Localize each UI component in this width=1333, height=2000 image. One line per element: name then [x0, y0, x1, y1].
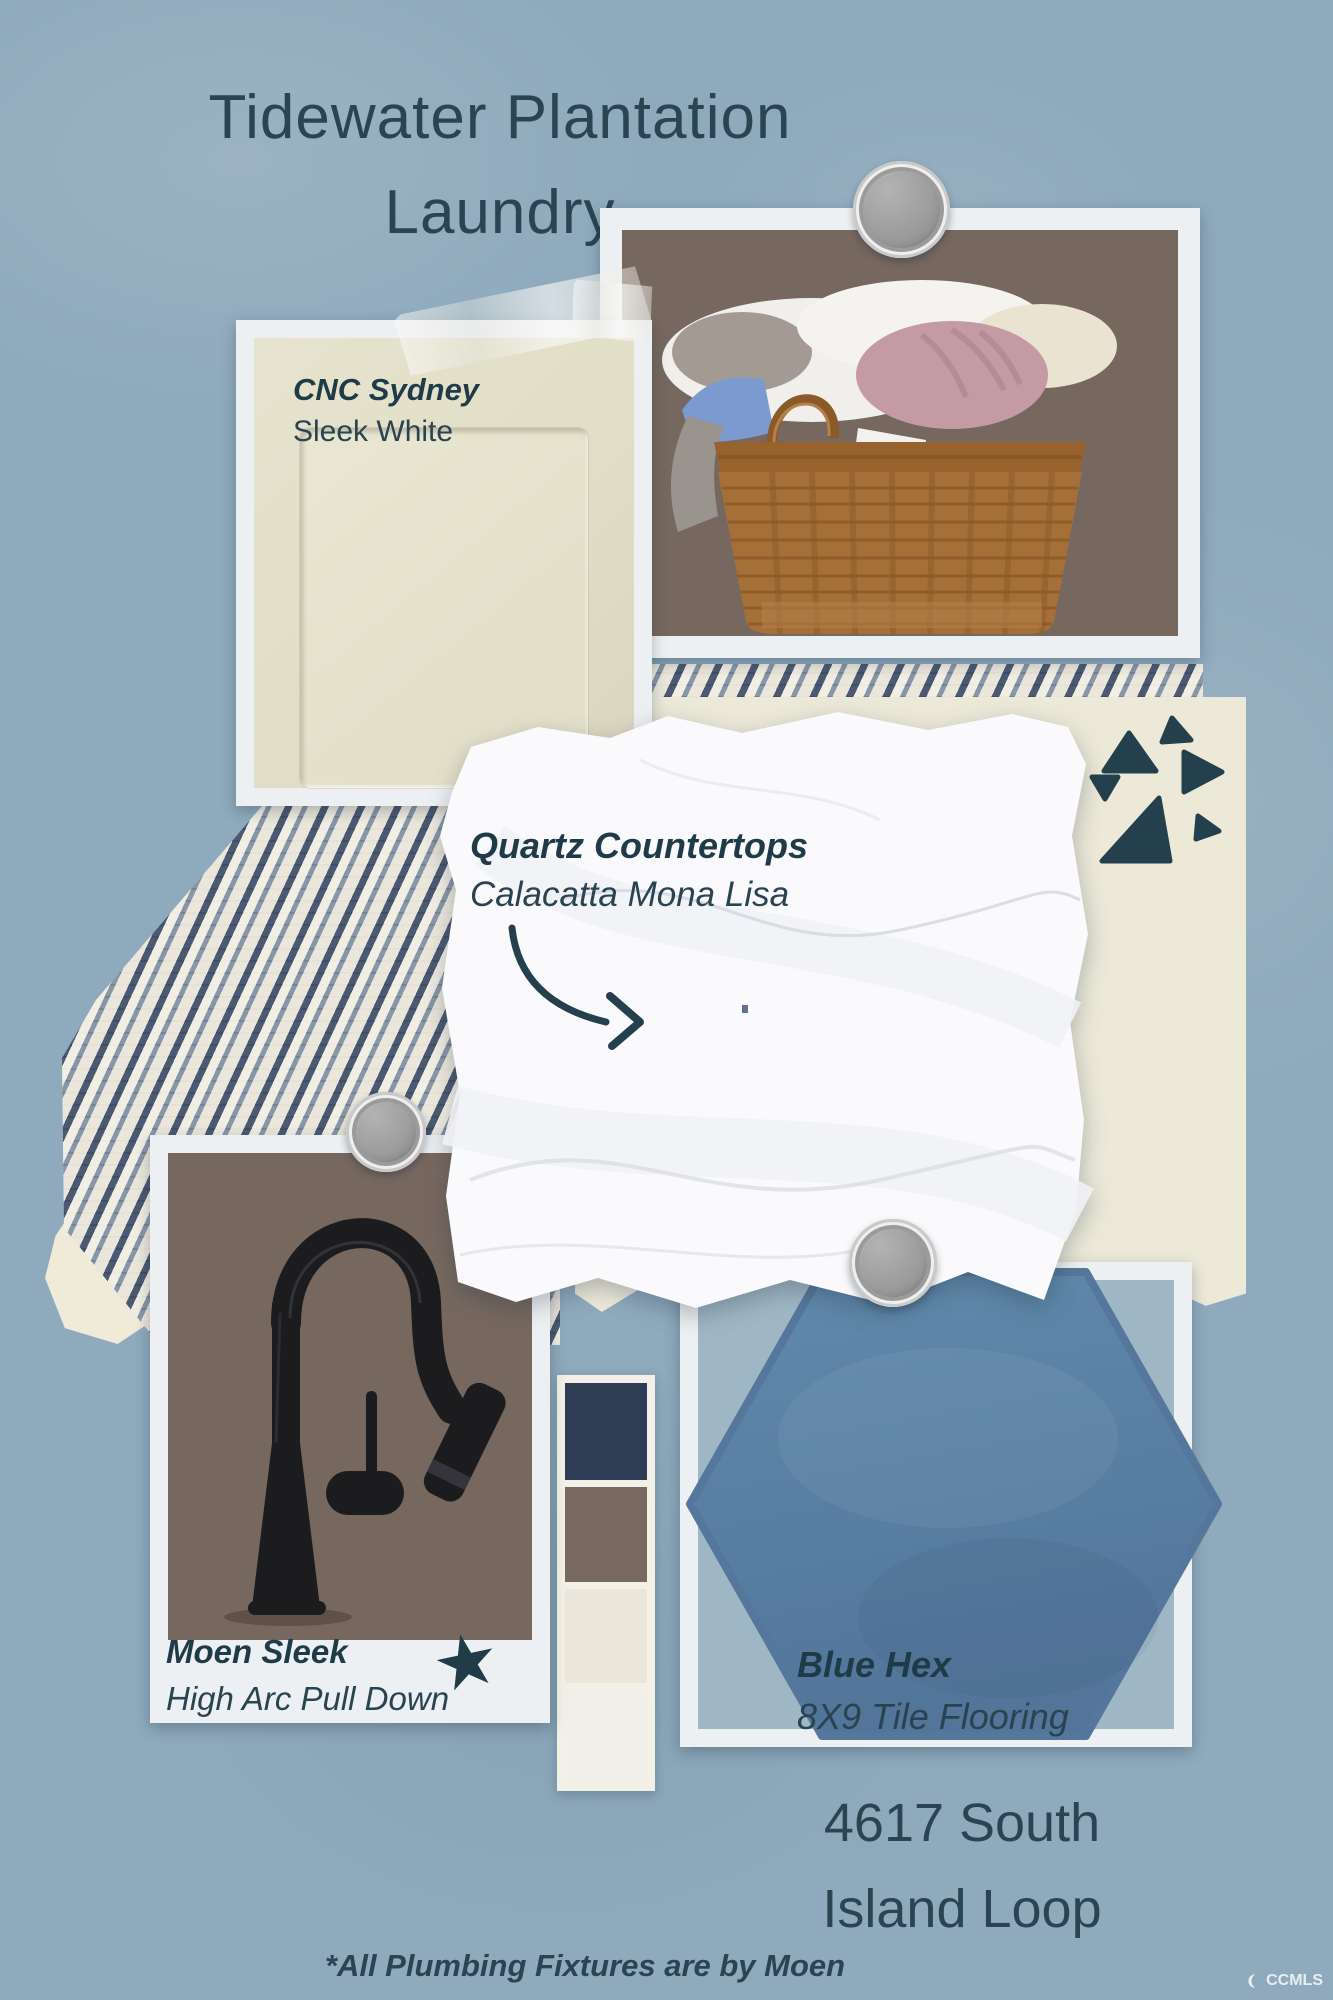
quartz-torn-paper	[430, 695, 1095, 1320]
ccmls-watermark: CCMLS	[1245, 1972, 1323, 1990]
faucet-label: Moen Sleek High Arc Pull Down	[166, 1633, 449, 1718]
faucet-name: Moen Sleek	[166, 1633, 449, 1671]
countertop-name: Quartz Countertops	[470, 825, 808, 867]
mood-board: Tidewater Plantation Laundry	[0, 0, 1333, 2000]
cabinet-finish: Sleek White	[293, 415, 479, 449]
quartz-sample: Quartz Countertops Calacatta Mona Lisa	[430, 695, 1095, 1320]
palette-strip	[557, 1375, 655, 1791]
watermark-text: CCMLS	[1266, 1972, 1323, 1990]
tile-sample-card: Blue Hex 8X9 Tile Flooring	[680, 1262, 1192, 1747]
crescent-icon	[1245, 1973, 1262, 1990]
palette-swatch-navy	[565, 1383, 647, 1480]
tape-strip	[570, 279, 654, 342]
address-line2: Island Loop	[742, 1866, 1182, 1952]
board-title-line1: Tidewater Plantation	[120, 70, 880, 165]
countertop-label: Quartz Countertops Calacatta Mona Lisa	[470, 825, 808, 915]
faucet-finish: High Arc Pull Down	[166, 1680, 449, 1718]
laundry-basket-photo	[622, 230, 1178, 636]
confetti-triangles-icon	[1084, 715, 1234, 875]
address-line1: 4617 South	[742, 1780, 1182, 1866]
tile-finish: 8X9 Tile Flooring	[797, 1696, 1069, 1738]
push-pin-icon	[849, 1219, 937, 1307]
plumbing-footnote: *All Plumbing Fixtures are by Moen	[280, 1948, 890, 1984]
palette-swatch-offwhite	[565, 1690, 647, 1783]
cabinet-name: CNC Sydney	[293, 372, 479, 408]
property-address: 4617 South Island Loop	[742, 1780, 1182, 1952]
push-pin-icon	[346, 1092, 426, 1172]
laundry-basket-illustration	[622, 230, 1178, 636]
push-pin-icon	[853, 161, 950, 258]
palette-swatch-brown	[565, 1487, 647, 1582]
cabinet-label: CNC Sydney Sleek White	[293, 372, 479, 449]
palette-swatch-cream	[565, 1589, 647, 1683]
laundry-basket-photo-card	[600, 208, 1200, 658]
tile-name: Blue Hex	[797, 1644, 1069, 1686]
tile-label: Blue Hex 8X9 Tile Flooring	[797, 1644, 1069, 1738]
countertop-finish: Calacatta Mona Lisa	[470, 875, 808, 915]
